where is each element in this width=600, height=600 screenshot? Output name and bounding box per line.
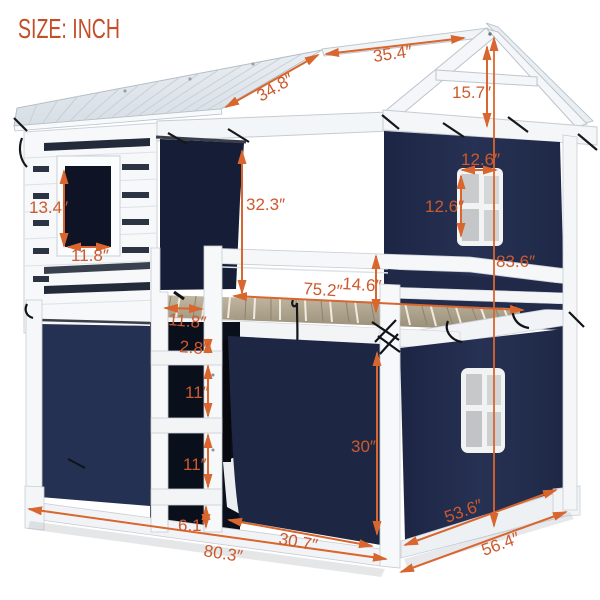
svg-text:12.6″: 12.6″: [461, 150, 500, 169]
svg-text:11.8″: 11.8″: [168, 310, 207, 332]
svg-text:6.1″: 6.1″: [178, 516, 208, 535]
svg-text:83.6″: 83.6″: [496, 252, 535, 271]
svg-text:12.6″: 12.6″: [425, 197, 464, 216]
svg-text:11″: 11″: [185, 383, 209, 402]
svg-text:14.6″: 14.6″: [342, 274, 382, 296]
svg-text:11.8″: 11.8″: [71, 246, 109, 265]
svg-text:75.2″: 75.2″: [303, 279, 343, 301]
svg-text:13.4″: 13.4″: [29, 198, 68, 217]
svg-text:15.7″: 15.7″: [452, 83, 491, 102]
svg-text:2.8″: 2.8″: [179, 337, 210, 359]
svg-text:SIZE: INCH: SIZE: INCH: [18, 13, 120, 44]
svg-text:11″: 11″: [183, 455, 207, 474]
svg-text:32.3″: 32.3″: [246, 195, 285, 214]
svg-text:30″: 30″: [351, 437, 376, 456]
